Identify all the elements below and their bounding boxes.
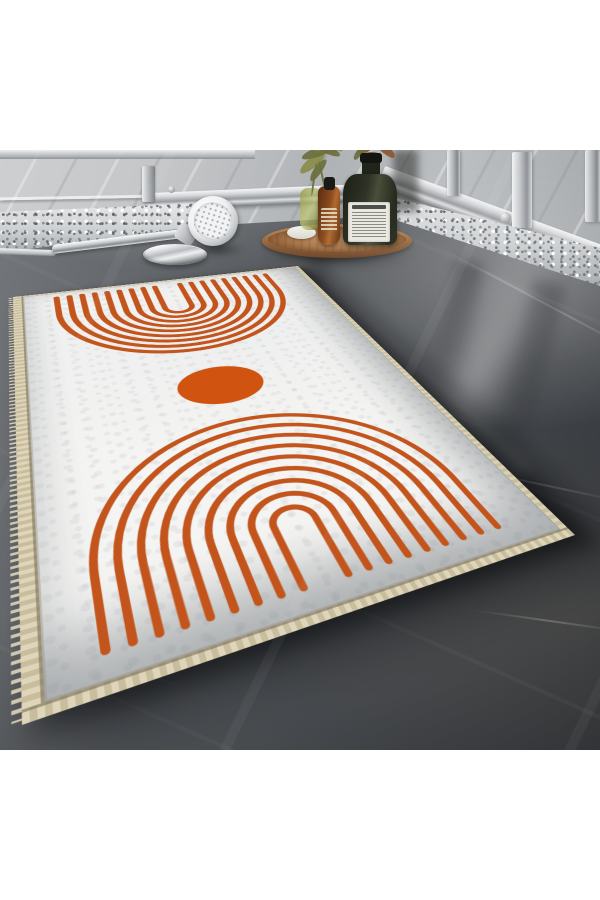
bathroom-scene-photo bbox=[0, 150, 600, 750]
glass-sheen-overlay bbox=[0, 150, 600, 750]
product-photo-page bbox=[0, 0, 600, 900]
